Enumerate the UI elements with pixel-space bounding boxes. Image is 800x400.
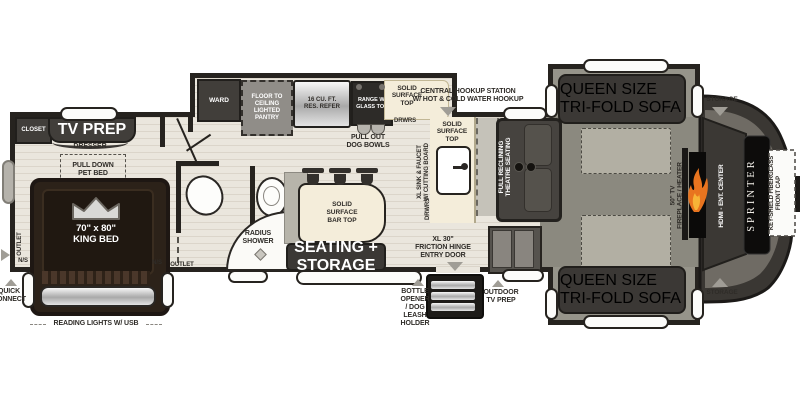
range-burner	[356, 84, 362, 90]
window-lens	[2, 160, 15, 204]
theatre-cushion	[524, 168, 552, 212]
pet-bed-label: PULL DOWN PET BED	[60, 162, 126, 178]
storage-bottom-label: STORAGE	[702, 289, 742, 296]
marker-arrow-icon	[1, 249, 10, 261]
toilet-room-wall	[176, 161, 219, 166]
closet-label: CLOSET	[21, 127, 45, 134]
bed-footboard	[40, 286, 156, 307]
entry-step	[431, 292, 475, 300]
wardrobe-label: WARD	[209, 97, 229, 104]
entry-cabinet-door	[514, 230, 534, 268]
island-seating: SEATING + STORAGE	[286, 243, 386, 271]
refrigerator-label: 16 CU. FT. RES. REFER	[304, 97, 340, 111]
drawers-side-label: DRWRS	[425, 194, 433, 224]
crown-icon	[70, 196, 122, 222]
bar-stool	[307, 174, 319, 185]
drawers-top-label: DRWRS	[390, 118, 420, 125]
range-burner	[379, 84, 385, 90]
shower-label: RADIUS SHOWER	[234, 230, 282, 246]
bath-wall	[160, 117, 165, 147]
bar-stool	[356, 168, 378, 173]
entry-door-arrow-icon	[447, 262, 463, 271]
window-lens	[583, 315, 669, 329]
door-opening-dash	[177, 237, 179, 263]
dresser-label: DRESSER	[66, 143, 114, 151]
storage-arrow-icon	[712, 278, 728, 287]
toilet-room-wall	[176, 161, 181, 233]
brand-logo: SPRINTER	[746, 141, 762, 249]
ns-left-label: N/S	[14, 258, 32, 265]
outdoor-tv-label: OUTDOOR TV PREP	[478, 289, 524, 305]
window-lens	[296, 270, 422, 285]
pantry-label: FLOOR TO CEILING LIGHTED PANTRY	[252, 94, 283, 123]
dog-bowls-label: PULL OUT DOG BOWLS	[343, 134, 393, 150]
window-lens	[161, 272, 174, 308]
bar-top-label: SOLID SURFACE BAR TOP	[326, 201, 357, 224]
theatre-cushion	[524, 124, 552, 166]
cupholder	[514, 162, 524, 172]
reading-lights-label: READING LIGHTS W/ USB	[48, 320, 144, 328]
outlet-left-label: OUTLET	[17, 229, 25, 259]
marker-arrow-icon	[492, 280, 504, 287]
window-lens	[502, 269, 544, 282]
marker-arrow-icon	[5, 279, 17, 286]
window-lens	[545, 288, 558, 320]
callout-dash	[146, 324, 162, 325]
kitchen-sink	[436, 146, 471, 195]
hookup-station-label: CENTRAL HOOKUP STATION W/ HOT & COLD WAT…	[412, 88, 524, 104]
faucet-icon	[461, 163, 468, 170]
entry-step	[431, 281, 475, 289]
refrigerator: 16 CU. FT. RES. REFER	[293, 80, 351, 128]
bar-stool	[361, 174, 373, 185]
entry-door-label: XL 30" FRICTION HINGE ENTRY DOOR	[404, 236, 482, 260]
callout-dash	[30, 324, 46, 325]
tv-fireplace-label: 50" TV FIREPLACE / HEATER	[670, 153, 685, 239]
entry-cabinet-door	[492, 230, 512, 268]
wardrobe: WARD	[197, 79, 241, 122]
bottle-opener-label: BOTTLE OPENER / DOG LEASH HOLDER	[396, 288, 434, 328]
cupholder	[526, 162, 536, 172]
bar-stool	[329, 168, 351, 173]
bar-stool	[334, 174, 346, 185]
window-lens	[228, 270, 268, 283]
marker-arrow-icon	[412, 279, 424, 286]
storage-top-label: STORAGE	[702, 96, 742, 103]
ent-center-label: HDMI - ENT. CENTER	[718, 146, 730, 246]
faucet-icon	[453, 166, 462, 169]
entry-step	[431, 303, 475, 311]
bath-wall	[188, 117, 193, 132]
window-lens	[60, 107, 118, 121]
storage-arrow-icon	[712, 107, 728, 116]
front-cap-label: KEY-SHIELD FIBERGLASS FRONT CAP	[769, 154, 789, 232]
bar-top: SOLID SURFACE BAR TOP	[298, 183, 386, 243]
hookup-arrow-icon	[440, 107, 456, 116]
window-lens	[583, 59, 669, 73]
sink-counter-label: SOLID SURFACE TOP	[432, 121, 472, 143]
bed-blanket	[42, 271, 150, 284]
bed-type-label: KING BED	[52, 235, 140, 246]
bath-sink-bowl	[263, 186, 280, 206]
outlet-right-label: OUTLET	[164, 262, 200, 269]
theatre-label: FULL RECLINING THEATRE SEATING	[498, 119, 514, 215]
floorplan: CLOSET TV PREP DRESSER PULL DOWN PET BED…	[0, 0, 800, 400]
bar-stool	[302, 168, 324, 173]
closet: CLOSET	[15, 117, 52, 144]
window-lens	[545, 84, 558, 118]
quick-connect-label: QUICK CONNECT	[0, 288, 30, 304]
pantry: FLOOR TO CEILING LIGHTED PANTRY	[241, 80, 293, 136]
